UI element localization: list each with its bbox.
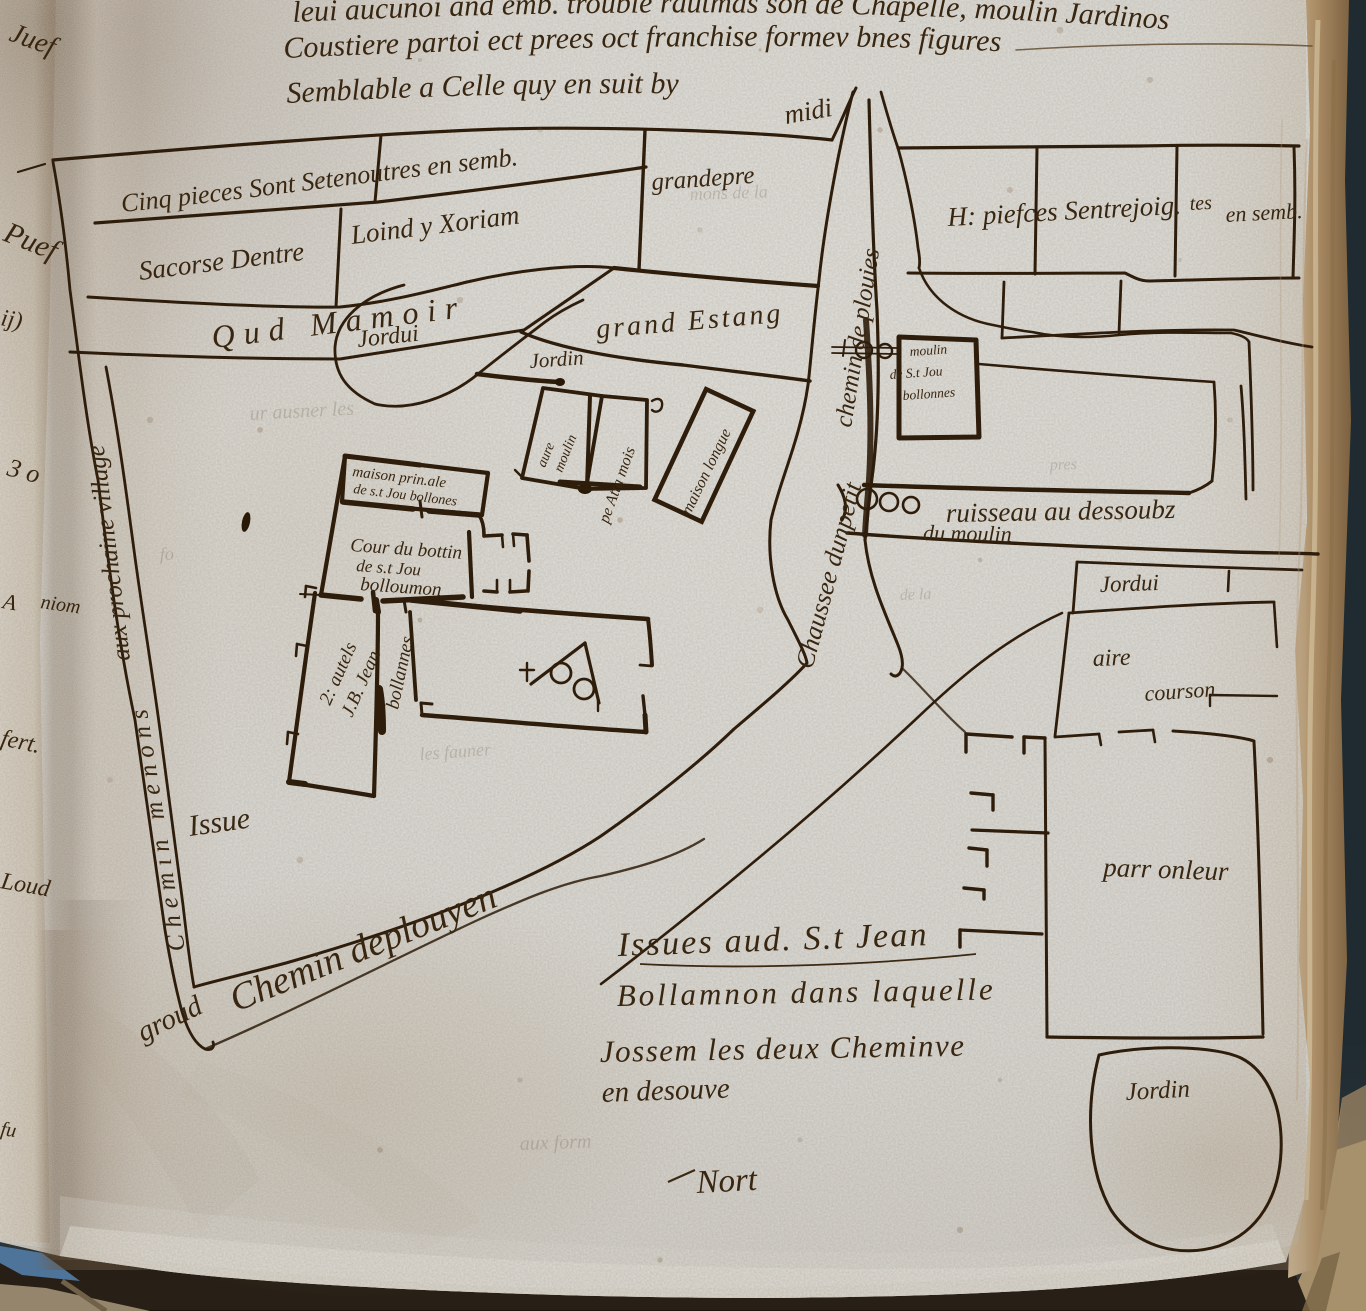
svg-text:pres: pres	[1049, 456, 1078, 474]
svg-text:Nort: Nort	[695, 1162, 759, 1201]
svg-text:du moulin: du moulin	[923, 520, 1012, 547]
svg-text:parr onleur: parr onleur	[1101, 852, 1230, 886]
svg-text:en desouve: en desouve	[601, 1073, 730, 1109]
svg-text:mons de la: mons de la	[689, 181, 768, 204]
svg-text:moulin: moulin	[909, 341, 948, 359]
svg-text:de la: de la	[900, 586, 932, 604]
svg-text:Jordin: Jordin	[1125, 1076, 1191, 1106]
svg-text:Jordui: Jordui	[1099, 570, 1159, 597]
svg-text:aux form: aux form	[519, 1131, 591, 1155]
svg-text:Jossem les deux Cheminve: Jossem les deux Cheminve	[600, 1028, 966, 1069]
svg-text:en semb.: en semb.	[1225, 198, 1303, 227]
svg-text:fo: fo	[159, 544, 174, 564]
svg-text:Bollamnon dans laquelle: Bollamnon dans laquelle	[617, 971, 997, 1013]
svg-text:tes: tes	[1189, 192, 1213, 215]
svg-text:courson: courson	[1144, 676, 1216, 706]
svg-text:fu: fu	[0, 1118, 18, 1142]
svg-text:aire: aire	[1092, 645, 1131, 672]
svg-text:Jordin: Jordin	[529, 345, 585, 373]
